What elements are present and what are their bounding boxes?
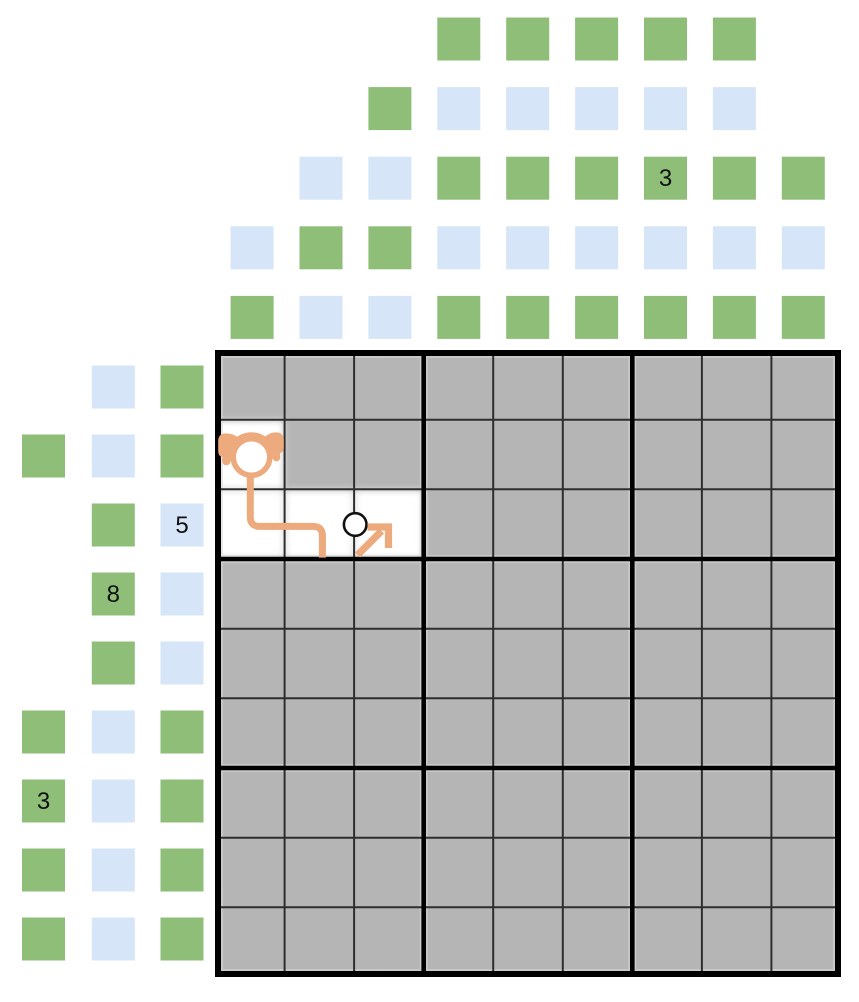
svg-text:3: 3 [37, 788, 50, 815]
svg-text:5: 5 [175, 512, 188, 539]
svg-text:8: 8 [107, 581, 120, 608]
svg-text:3: 3 [659, 165, 672, 192]
